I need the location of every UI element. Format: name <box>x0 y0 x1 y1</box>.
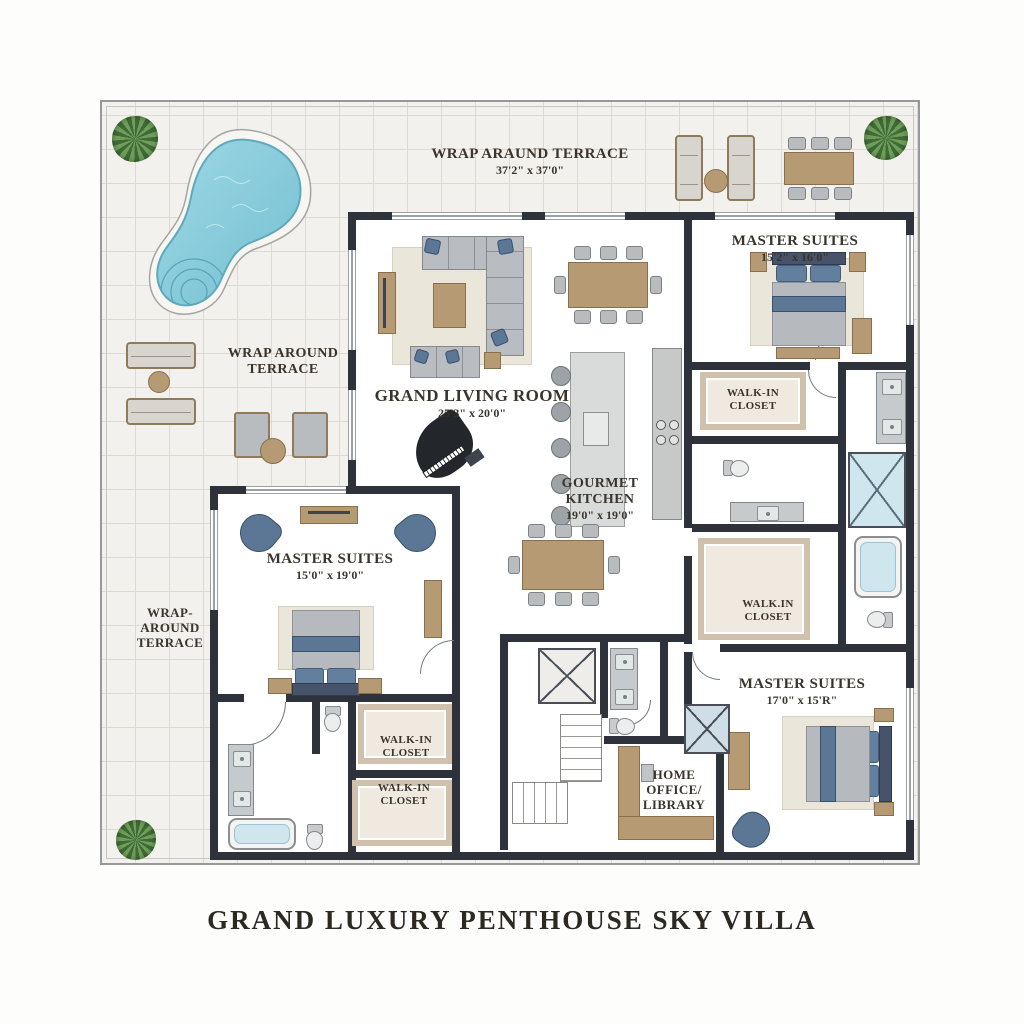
room-name: MASTER SUITES <box>732 233 859 250</box>
wardrobe <box>424 580 442 638</box>
walk-in-shower-icon <box>848 452 906 528</box>
terrace-armchair <box>292 412 328 458</box>
nightstand <box>874 802 894 816</box>
toilet-icon <box>723 461 749 477</box>
bench <box>358 678 382 694</box>
room-name: TERRACE <box>137 636 203 651</box>
room-name: OFFICE/ <box>643 783 705 798</box>
sun-lounger <box>126 398 196 425</box>
dining-chair <box>528 592 545 606</box>
bed <box>772 252 844 344</box>
label-home-office: HOME OFFICE/ LIBRARY <box>643 768 705 813</box>
office-desk <box>618 746 640 818</box>
tv-console <box>378 272 396 334</box>
side-table <box>484 352 501 369</box>
dining-chair <box>626 310 643 324</box>
room-name: MASTER SUITES <box>739 676 866 693</box>
elevator-icon <box>684 704 730 754</box>
room-name: CLOSET <box>378 795 430 808</box>
cooktop-burner-icon <box>656 420 666 430</box>
stairs <box>512 782 568 824</box>
terrace-chair <box>834 137 852 150</box>
coffee-table <box>433 283 466 328</box>
room-name: KITCHEN <box>562 492 639 508</box>
side-table <box>148 371 170 393</box>
label-closet-left-lower: WALK-IN CLOSET <box>378 782 430 807</box>
room-name: WALK-IN <box>380 734 432 747</box>
elevator-icon <box>538 648 596 704</box>
window <box>906 235 914 325</box>
room-dims: 17'0" x 15'R" <box>739 693 866 707</box>
island-sink-icon <box>583 412 609 446</box>
room-dims: 15'0" x 19'0" <box>267 568 394 582</box>
terrace-chair <box>811 137 829 150</box>
dining-chair <box>582 592 599 606</box>
terrace-chair <box>811 187 829 200</box>
dining-chair <box>600 310 617 324</box>
cooktop-burner-icon <box>656 435 666 445</box>
label-suite-bottom-right: MASTER SUITES 17'0" x 15'R" <box>739 676 866 708</box>
dining-table <box>568 262 648 308</box>
room-name: CLOSET <box>742 611 793 624</box>
wall <box>838 362 906 370</box>
toilet-icon <box>306 824 322 850</box>
throw-pillow <box>424 238 442 256</box>
room-name: CLOSET <box>727 400 779 413</box>
dining-chair <box>608 556 620 574</box>
tv-icon <box>383 278 386 328</box>
dresser <box>300 506 358 524</box>
powder-vanity <box>610 648 638 710</box>
room-name: WRAP- <box>137 606 203 621</box>
wall <box>604 736 684 744</box>
window <box>210 510 218 610</box>
kitchen-counter <box>652 348 682 520</box>
wall <box>312 702 320 754</box>
label-terrace-side: WRAP- AROUND TERRACE <box>137 606 203 651</box>
label-closet-top-right: WALK-IN CLOSET <box>727 387 779 412</box>
cooktop-burner-icon <box>669 420 679 430</box>
room-name: WRAP AROUND <box>228 346 339 362</box>
room-name: CLOSET <box>380 747 432 760</box>
terrace-round-table <box>260 438 286 464</box>
dining-chair <box>554 276 566 294</box>
window <box>715 212 835 220</box>
wall <box>692 362 810 370</box>
toilet-icon <box>867 611 893 627</box>
window <box>246 486 346 494</box>
toilet-icon <box>324 706 340 732</box>
window <box>392 212 522 220</box>
terrace-chair <box>788 187 806 200</box>
room-name: WALK-IN <box>727 387 779 400</box>
dining-chair <box>574 246 591 260</box>
window <box>348 250 356 350</box>
sun-lounger <box>727 135 755 201</box>
wall <box>600 642 608 718</box>
terrace-chair <box>788 137 806 150</box>
wall <box>838 370 846 644</box>
window <box>906 688 914 820</box>
label-terrace-left: WRAP AROUND TERRACE <box>228 346 339 378</box>
dining-chair <box>650 276 662 294</box>
room-dims: 15'2" x 16'0" <box>732 250 859 264</box>
label-suite-left: MASTER SUITES 15'0" x 19'0" <box>267 551 394 583</box>
room-name: WALK.IN <box>742 598 793 611</box>
wall <box>692 436 838 444</box>
plan-title: GRAND LUXURY PENTHOUSE SKY VILLA <box>0 905 1024 936</box>
wall <box>716 752 724 852</box>
wall <box>684 652 692 704</box>
dining-chair <box>582 524 599 538</box>
floor-plan: WRAP ARAUND TERRACE 37'2" x 37'0" WRAP A… <box>0 0 1024 1024</box>
cooktop-burner-icon <box>669 435 679 445</box>
bar-stool <box>551 366 571 386</box>
side-table <box>704 169 728 193</box>
wall <box>500 642 508 850</box>
room-name: WRAP ARAUND TERRACE <box>431 146 628 163</box>
throw-pillow <box>497 238 514 255</box>
dresser <box>728 732 750 790</box>
double-vanity <box>228 744 254 816</box>
room-dims: 19'0" x 19'0" <box>562 508 639 522</box>
dining-table <box>522 540 604 590</box>
sun-lounger <box>675 135 703 201</box>
room-name: LIBRARY <box>643 798 705 813</box>
toilet-icon <box>609 719 635 735</box>
wall <box>692 524 838 532</box>
stairs <box>560 714 602 782</box>
double-vanity <box>876 372 906 444</box>
wall <box>210 694 244 702</box>
room-dims: 25'3" x 20'0" <box>375 406 570 420</box>
bathtub-icon <box>854 536 902 598</box>
wall <box>348 770 460 778</box>
bed <box>292 610 358 696</box>
swimming-pool <box>148 124 324 330</box>
bathtub-icon <box>228 818 296 850</box>
room-name: WALK-IN <box>378 782 430 795</box>
dresser <box>852 318 872 354</box>
dining-chair <box>528 524 545 538</box>
label-closet-left-upper: WALK-IN CLOSET <box>380 734 432 759</box>
tv-icon <box>308 511 350 514</box>
terrace-dining-table <box>784 152 854 185</box>
sun-lounger <box>126 342 196 369</box>
window <box>348 390 356 460</box>
room-name: HOME <box>643 768 705 783</box>
terrace-chair <box>834 187 852 200</box>
dining-chair <box>555 592 572 606</box>
label-closet-mid-right: WALK.IN CLOSET <box>742 598 793 623</box>
wall <box>500 634 692 642</box>
bar-stool <box>551 438 571 458</box>
dining-chair <box>574 310 591 324</box>
dining-chair <box>508 556 520 574</box>
dining-chair <box>600 246 617 260</box>
room-name: AROUND <box>137 621 203 636</box>
bench <box>268 678 292 694</box>
wall <box>684 212 692 528</box>
label-living-room: GRAND LIVING ROOM 25'3" x 20'0" <box>375 386 570 420</box>
nightstand <box>874 708 894 722</box>
room-name: MASTER SUITES <box>267 551 394 568</box>
label-terrace-top: WRAP ARAUND TERRACE 37'2" x 37'0" <box>431 146 628 178</box>
bed <box>806 726 892 800</box>
label-kitchen: GOURMET KITCHEN 19'0" x 19'0" <box>562 476 639 523</box>
bathroom-counter <box>730 502 804 522</box>
wall <box>720 644 906 652</box>
wall <box>684 556 692 644</box>
wall <box>660 642 668 742</box>
label-suite-top-right: MASTER SUITES 15'2" x 16'0" <box>732 233 859 265</box>
room-dims: 37'2" x 37'0" <box>431 163 628 177</box>
dining-chair <box>626 246 643 260</box>
closet-carpet <box>698 538 810 640</box>
window <box>545 212 625 220</box>
room-name: TERRACE <box>228 362 339 378</box>
bench <box>776 347 840 359</box>
room-name: GOURMET <box>562 476 639 492</box>
room-name: GRAND LIVING ROOM <box>375 386 570 406</box>
dining-chair <box>555 524 572 538</box>
office-desk <box>618 816 714 840</box>
